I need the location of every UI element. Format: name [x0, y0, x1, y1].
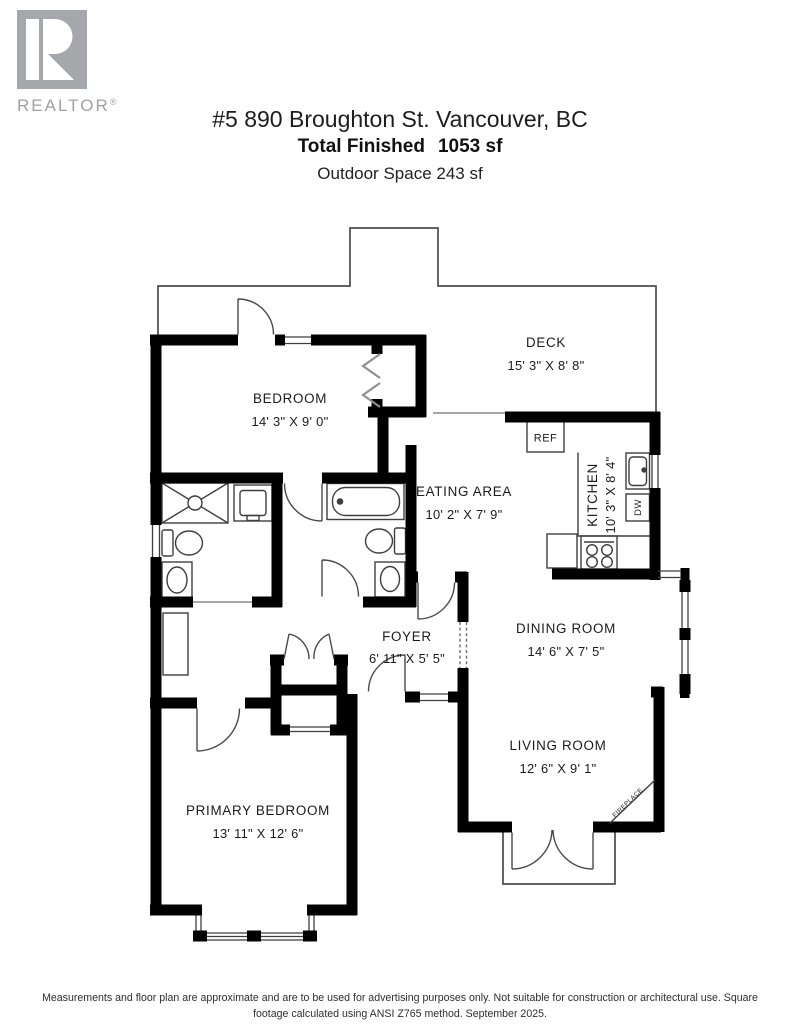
room-label-primary-bedroom: PRIMARY BEDROOM	[186, 803, 330, 818]
deck-outline	[158, 228, 656, 413]
room-dims-primary-bedroom: 13' 11" X 12' 6"	[212, 826, 303, 841]
room-dims-living-room: 12' 6" X 9' 1"	[519, 761, 596, 776]
entry-opening-dashed	[460, 622, 467, 668]
room-label-living-room: LIVING ROOM	[510, 738, 607, 753]
room-label-dining-room: DINING ROOM	[516, 621, 616, 636]
stove-icon	[581, 536, 617, 569]
room-label-kitchen: KITCHEN	[585, 463, 600, 527]
disclaimer-line-1: Measurements and floor plan are approxim…	[0, 992, 800, 1004]
room-dims-deck: 15' 3" X 8' 8"	[507, 358, 584, 373]
room-label-eating-area: EATING AREA	[416, 484, 512, 499]
door-swings	[197, 299, 593, 869]
bathtub-icon	[327, 484, 404, 520]
toilet-icon	[366, 528, 406, 554]
sink-vanity-icon	[375, 562, 405, 597]
patio-outline	[503, 832, 615, 884]
kitchen-sink-icon	[626, 453, 650, 489]
toilet-icon	[162, 530, 203, 556]
room-dims-bedroom: 14' 3" X 9' 0"	[251, 414, 328, 429]
disclaimer-line-2: footage calculated using ANSI Z765 metho…	[0, 1008, 800, 1020]
room-dims-eating-area: 10' 2" X 7' 9"	[425, 507, 502, 522]
room-dims-dining-room: 14' 6" X 7' 5"	[527, 644, 604, 659]
room-label-deck: DECK	[526, 335, 566, 350]
sink-vanity-icon	[162, 562, 192, 598]
kitchen-peninsula	[547, 534, 577, 568]
refrigerator-label: REF	[534, 433, 558, 445]
room-label-bedroom: BEDROOM	[253, 391, 327, 406]
bath-cabinet-icon	[234, 485, 272, 521]
room-dims-kitchen: 10' 3" X 8' 4"	[603, 456, 618, 533]
room-dims-foyer: 6' 11" X 5' 5"	[369, 651, 445, 666]
fireplace-label: FIREPLACE	[611, 787, 644, 819]
room-label-foyer: FOYER	[382, 629, 432, 644]
floor-plan-drawing: FIREPLACE BEDROOM 14' 3" X 9' 0" DECK 15…	[0, 0, 800, 1035]
floor-plan-page: REALTOR® #5 890 Broughton St. Vancouver,…	[0, 0, 800, 1035]
shower-icon	[162, 483, 228, 523]
linen-closet	[163, 613, 188, 675]
dishwasher-label: DW	[633, 499, 644, 516]
